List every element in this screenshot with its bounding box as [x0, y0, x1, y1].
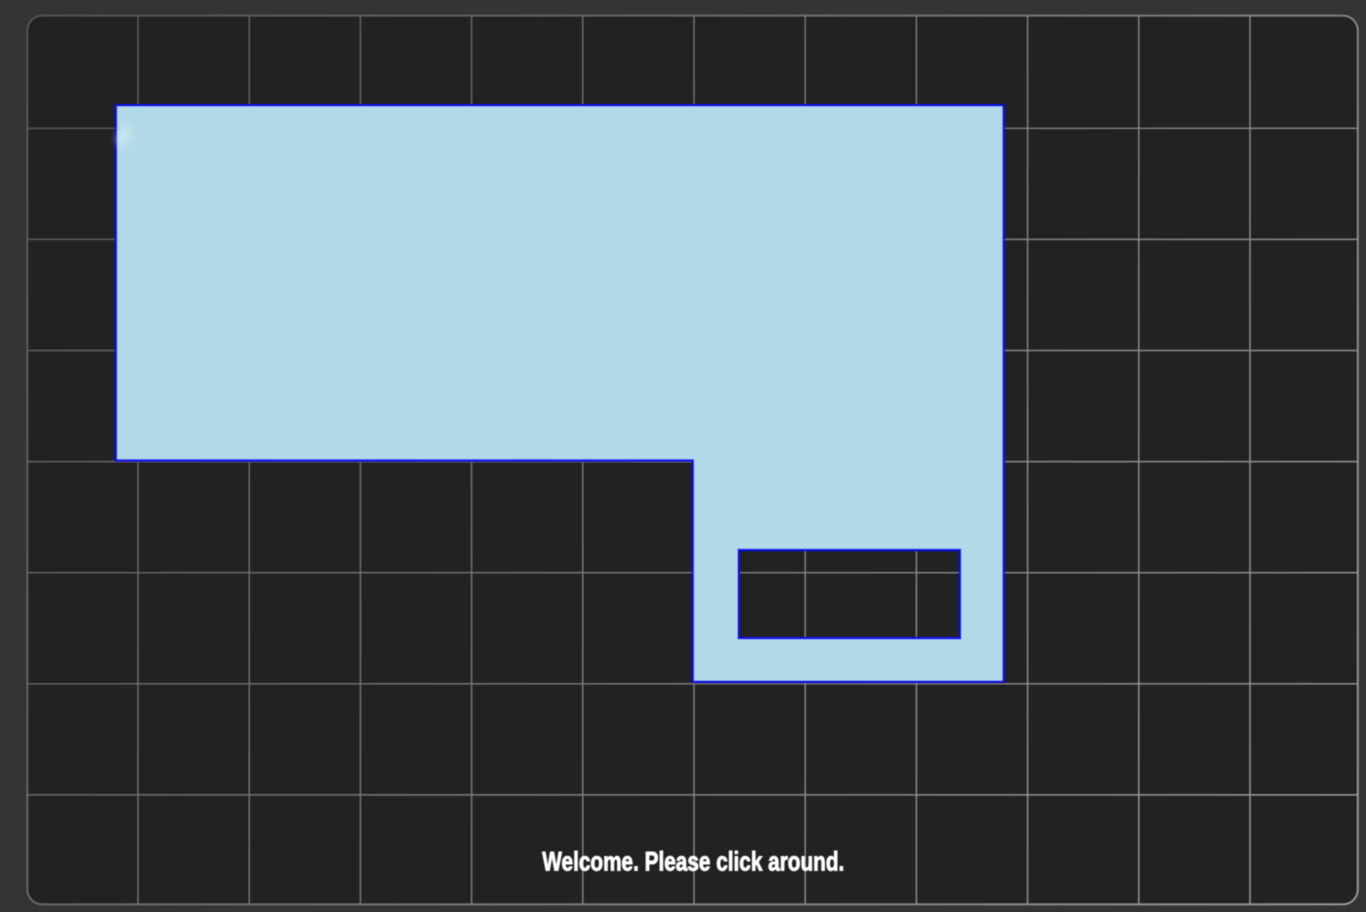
svg-text:Welcome. Please click around.: Welcome. Please click around. — [542, 846, 844, 876]
